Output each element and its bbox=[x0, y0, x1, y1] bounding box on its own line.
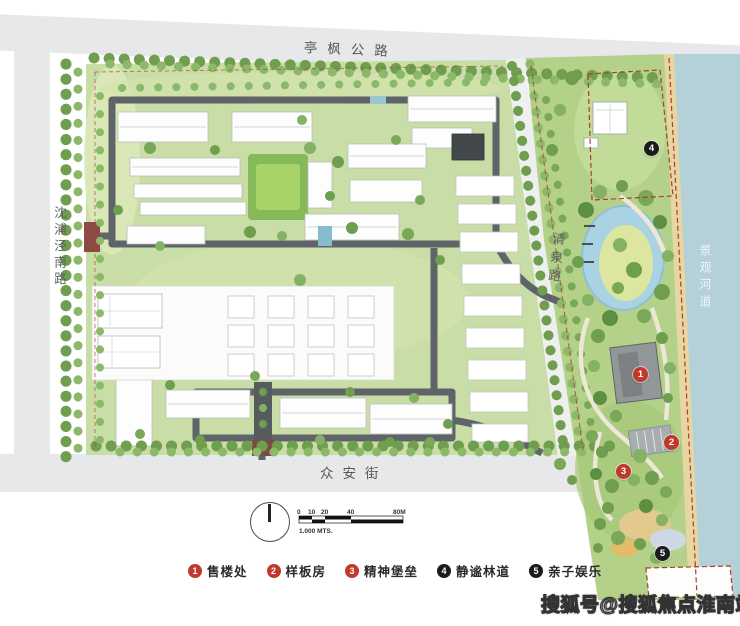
marker-model-room: 2 bbox=[664, 435, 679, 450]
legend-badge: 5 bbox=[529, 564, 543, 578]
legend-label: 精神堡垒 bbox=[364, 561, 418, 580]
legend-badge: 2 bbox=[267, 564, 281, 578]
river-label: 景观河道 bbox=[697, 244, 714, 312]
marker-quiet-trail: 4 bbox=[644, 141, 659, 156]
scale-tick: 80M bbox=[393, 509, 406, 516]
legend-badge: 3 bbox=[345, 564, 359, 578]
marker-kids-play: 5 bbox=[655, 546, 670, 561]
west-gate bbox=[84, 222, 100, 252]
legend-label: 样板房 bbox=[286, 561, 327, 580]
legend-badge: 4 bbox=[437, 564, 451, 578]
park-kiosk bbox=[584, 138, 598, 148]
legend-badge: 1 bbox=[188, 564, 202, 578]
site-plan: 亭枫公路 众安街 bbox=[0, 0, 740, 626]
legend-item-spirit-tower: 3 精神堡垒 bbox=[345, 561, 418, 580]
legend-item-model-room: 2 样板房 bbox=[267, 561, 327, 580]
central-lawn bbox=[256, 164, 300, 210]
scale-tick: 40 bbox=[347, 509, 355, 516]
legend: 1 售楼处 2 样板房 3 精神堡垒 4 静谧林道 5 亲子娱乐 bbox=[188, 561, 602, 580]
road-label-shenpujing: 沈浦泾南路 bbox=[50, 206, 69, 289]
legend-label: 亲子娱乐 bbox=[548, 561, 602, 580]
legend-label: 静谧林道 bbox=[456, 561, 510, 580]
water-feature bbox=[318, 226, 332, 246]
scale-bar-segments bbox=[299, 516, 403, 523]
building bbox=[127, 226, 205, 244]
water-feature bbox=[370, 96, 386, 104]
marker-spirit-tower: 3 bbox=[616, 464, 631, 479]
scale-note: 1.000 MTS. bbox=[299, 528, 333, 535]
building bbox=[350, 180, 422, 202]
legend-item-kids-play: 5 亲子娱乐 bbox=[529, 561, 602, 580]
scale-tick: 20 bbox=[321, 509, 329, 516]
legend-item-quiet-trail: 4 静谧林道 bbox=[437, 561, 510, 580]
pond bbox=[582, 206, 664, 310]
watermark-text: 搜狐号@搜狐焦点淮南站 bbox=[541, 590, 740, 617]
legend-label: 售楼处 bbox=[207, 561, 248, 580]
scale-tick: 0 bbox=[297, 509, 301, 516]
scale-tick: 10 bbox=[308, 509, 316, 516]
legend-item-sales-office: 1 售楼处 bbox=[188, 561, 248, 580]
building bbox=[140, 202, 246, 215]
marker-sales-office: 1 bbox=[633, 367, 648, 382]
building bbox=[116, 380, 152, 446]
building bbox=[308, 162, 332, 208]
compass-needle-icon bbox=[268, 504, 271, 522]
building bbox=[134, 184, 242, 198]
compass bbox=[250, 502, 290, 542]
scale-bar: 0 10 20 40 80M 1.000 MTS. bbox=[296, 506, 416, 538]
dark-building bbox=[452, 134, 484, 160]
